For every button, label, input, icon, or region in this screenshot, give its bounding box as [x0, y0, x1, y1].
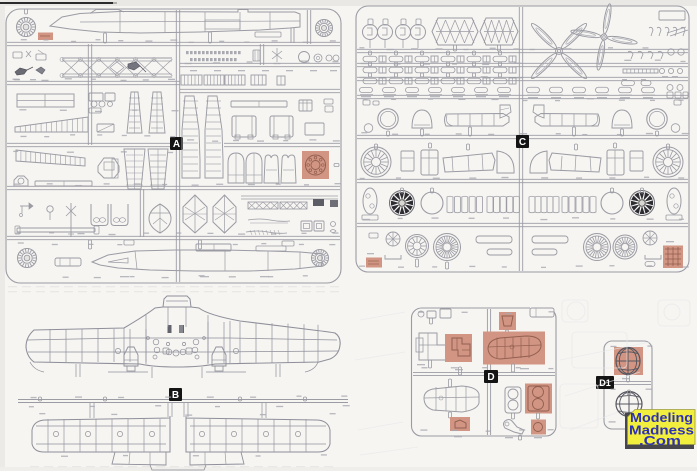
svg-text:C: C	[519, 137, 526, 148]
svg-text:D: D	[487, 372, 494, 383]
svg-text:.Com: .Com	[639, 434, 681, 448]
svg-text:B: B	[172, 390, 179, 401]
svg-text:A: A	[173, 139, 180, 150]
